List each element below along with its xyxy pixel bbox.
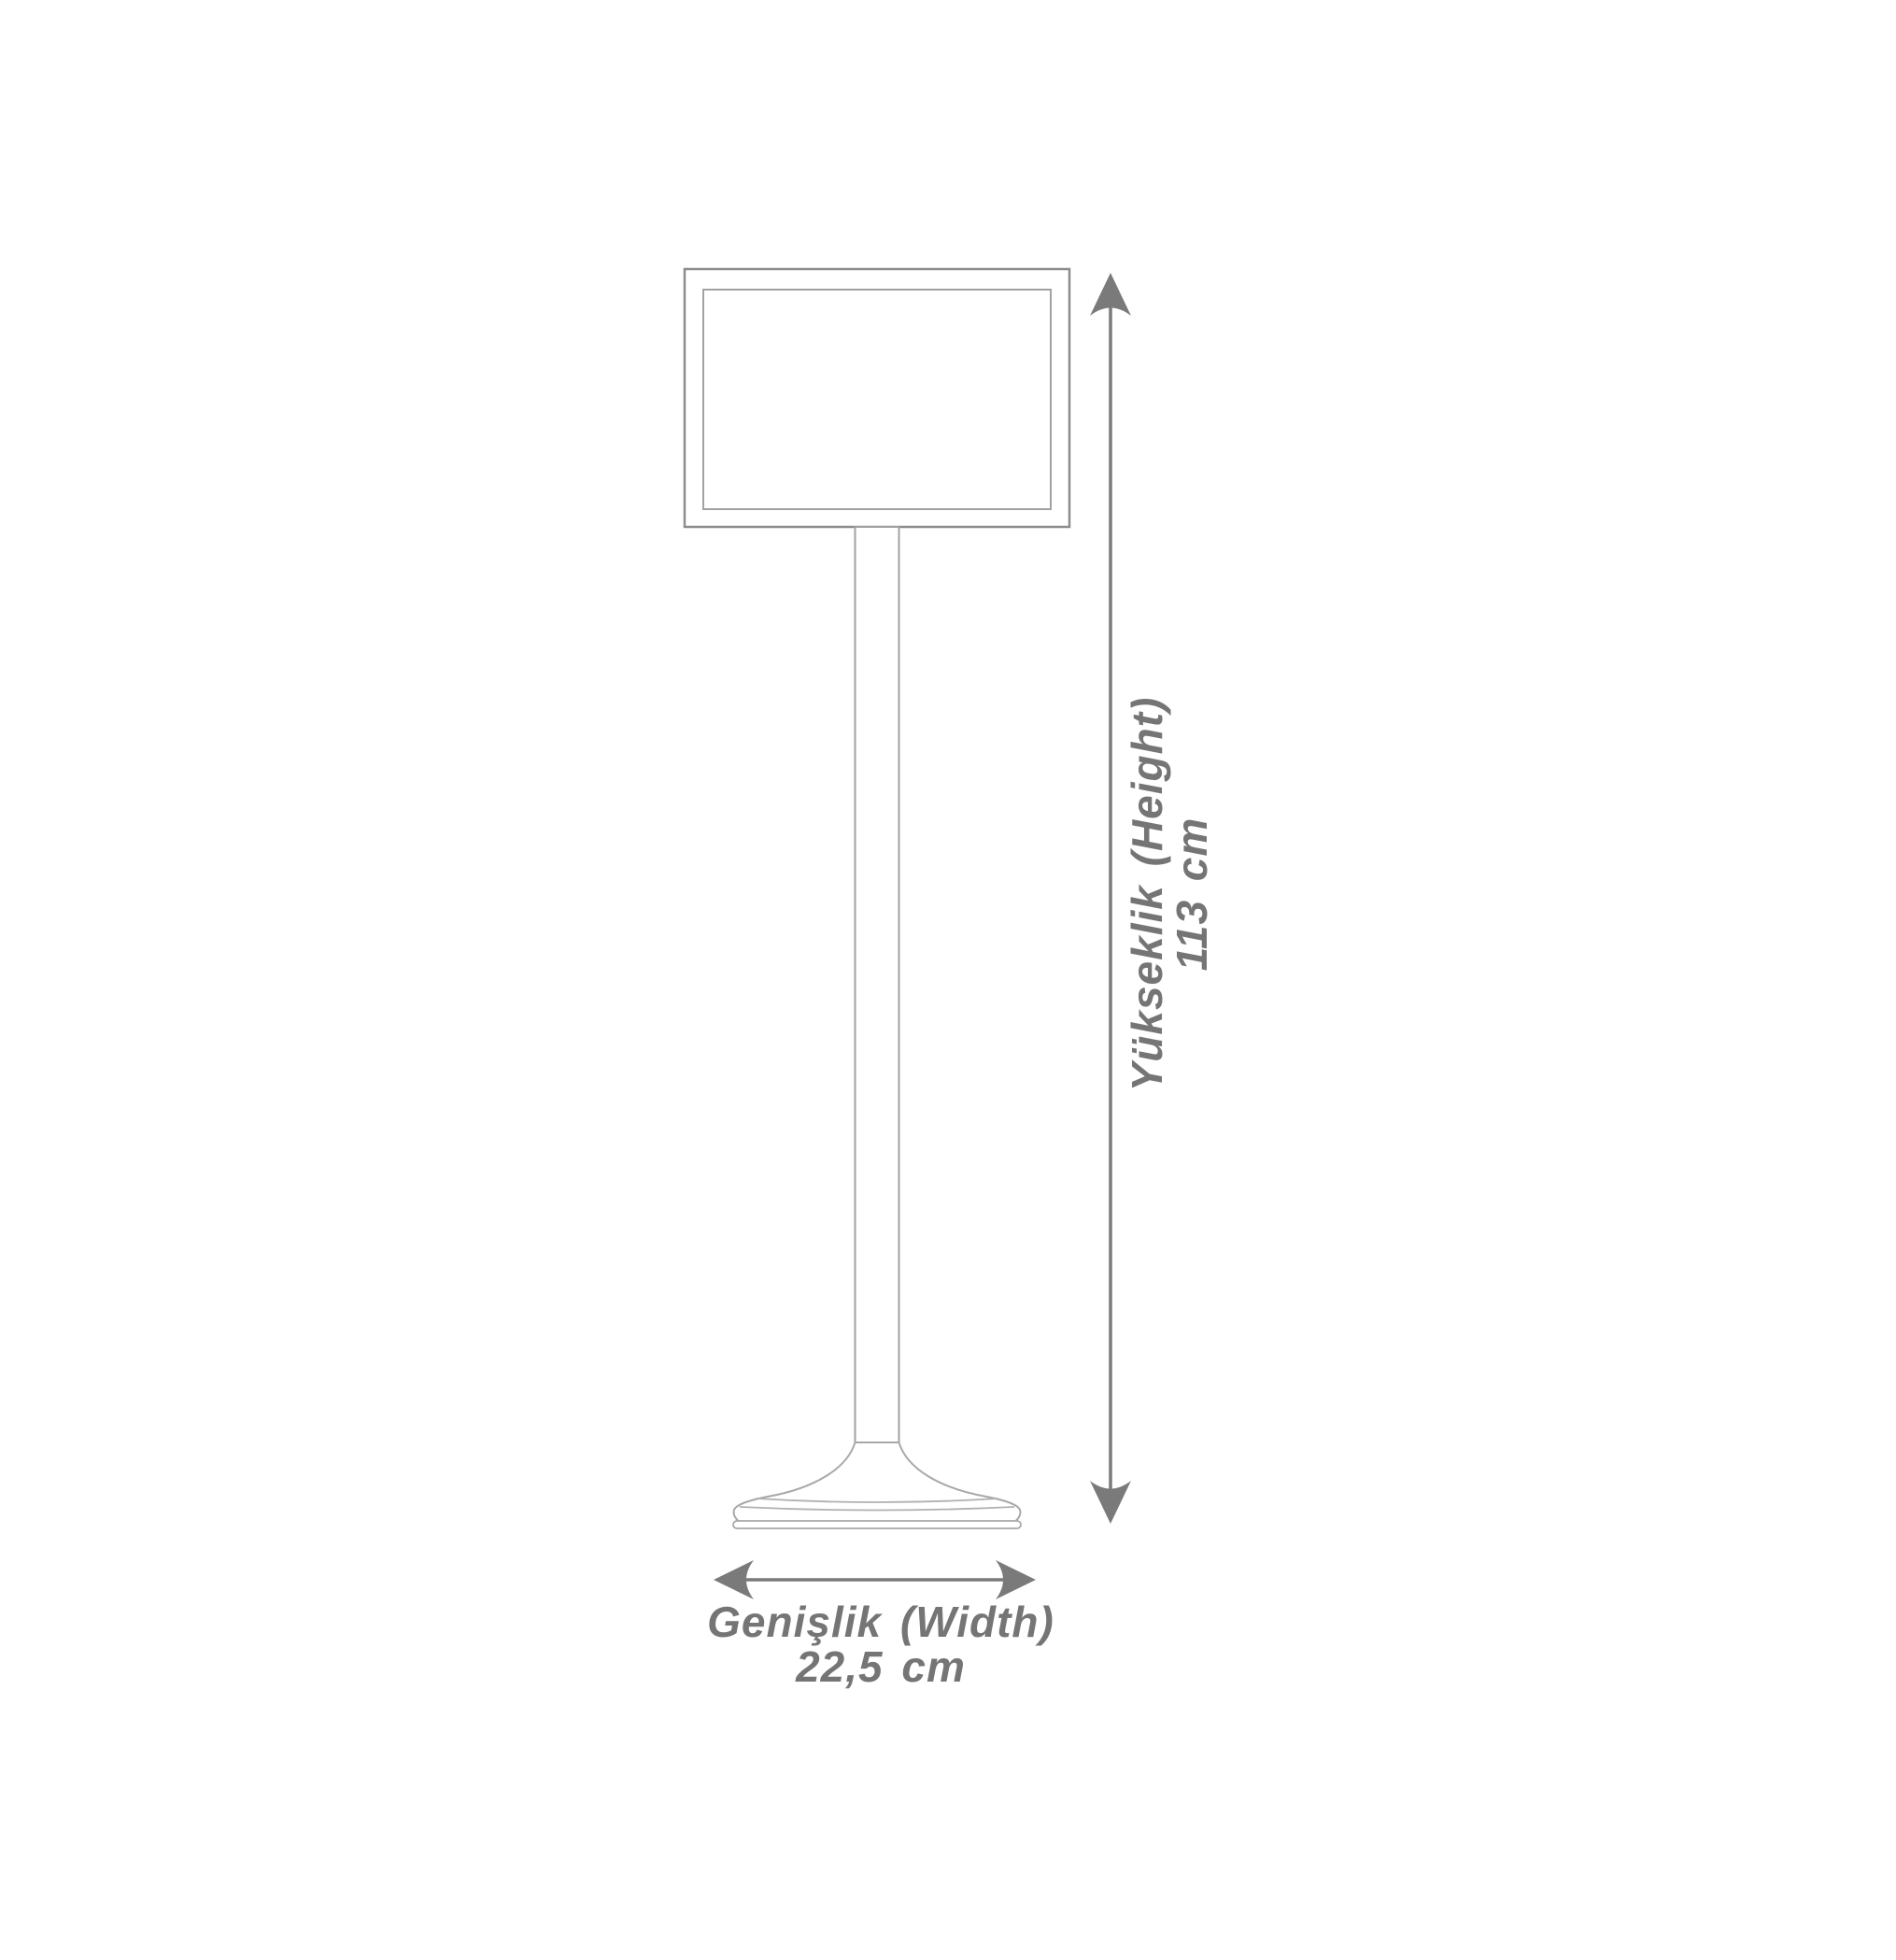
- height-dimension-label: Yükseklik (Height) 113 cm: [1123, 604, 1216, 1184]
- base-plate: [733, 1521, 1021, 1528]
- width-label-value: 22,5 cm: [601, 1644, 1161, 1689]
- width-dimension-arrow: [714, 1560, 1036, 1599]
- height-label-title: Yükseklik (Height): [1125, 697, 1169, 1092]
- width-label-title: Genişlik (Width): [601, 1599, 1161, 1644]
- dimension-diagram: Yükseklik (Height) 113 cm Genişlik (Widt…: [0, 0, 1896, 1960]
- sign-frame-inner: [703, 290, 1051, 509]
- height-label-value: 113 cm: [1169, 817, 1214, 972]
- pole: [856, 527, 899, 1442]
- width-dimension-label: Genişlik (Width) 22,5 cm: [601, 1599, 1161, 1689]
